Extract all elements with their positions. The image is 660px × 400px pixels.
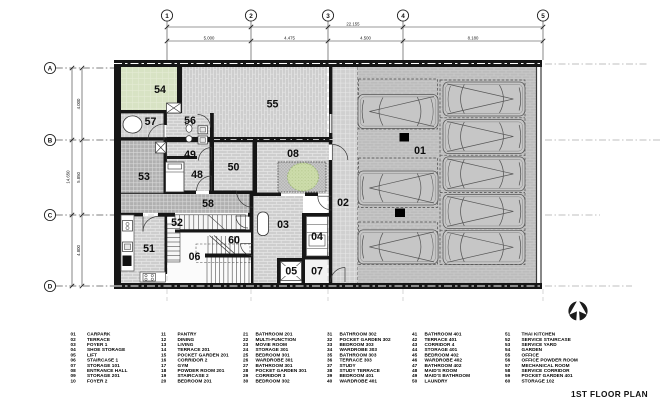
svg-text:BEDROOM 201: BEDROOM 201 <box>178 378 212 383</box>
svg-text:40: 40 <box>327 378 333 383</box>
svg-text:56: 56 <box>184 115 196 127</box>
svg-text:03: 03 <box>277 219 289 231</box>
svg-text:57: 57 <box>145 116 157 128</box>
svg-text:55: 55 <box>267 99 279 111</box>
svg-text:05: 05 <box>285 266 297 278</box>
svg-text:1ST FLOOR PLAN: 1ST FLOOR PLAN <box>571 389 648 399</box>
svg-text:5.850: 5.850 <box>76 172 81 183</box>
svg-text:3: 3 <box>326 13 330 20</box>
svg-text:4.475: 4.475 <box>284 35 295 40</box>
svg-text:4: 4 <box>401 13 405 20</box>
svg-text:02: 02 <box>337 197 349 209</box>
svg-text:49: 49 <box>184 149 196 161</box>
svg-text:58: 58 <box>202 198 214 210</box>
svg-text:30: 30 <box>243 378 249 383</box>
svg-text:04: 04 <box>311 231 323 243</box>
svg-text:53: 53 <box>138 171 150 183</box>
svg-text:50: 50 <box>412 378 418 383</box>
svg-text:5.000: 5.000 <box>204 35 215 40</box>
svg-text:52: 52 <box>171 217 183 229</box>
svg-text:60: 60 <box>505 378 511 383</box>
svg-text:B: B <box>48 137 53 144</box>
svg-text:C: C <box>48 212 53 219</box>
svg-text:8.180: 8.180 <box>468 35 479 40</box>
svg-text:STORAGE 102: STORAGE 102 <box>522 378 555 383</box>
svg-text:54: 54 <box>154 84 166 96</box>
svg-text:06: 06 <box>189 251 201 263</box>
svg-text:51: 51 <box>143 243 155 255</box>
svg-text:07: 07 <box>311 266 323 278</box>
svg-text:A: A <box>48 65 53 72</box>
svg-text:01: 01 <box>414 145 426 157</box>
svg-text:4.000: 4.000 <box>76 98 81 109</box>
svg-text:20: 20 <box>161 378 167 383</box>
svg-text:D: D <box>48 283 53 290</box>
svg-text:08: 08 <box>287 148 299 160</box>
svg-text:FOYER 2: FOYER 2 <box>87 378 108 383</box>
svg-text:50: 50 <box>228 162 240 174</box>
svg-text:2: 2 <box>249 13 253 20</box>
svg-text:14.650: 14.650 <box>66 170 71 184</box>
svg-text:1: 1 <box>165 13 169 20</box>
svg-text:48: 48 <box>191 169 203 181</box>
svg-text:4.500: 4.500 <box>360 35 371 40</box>
svg-text:BEDROOM 302: BEDROOM 302 <box>256 378 290 383</box>
svg-text:60: 60 <box>228 235 240 247</box>
svg-text:4.800: 4.800 <box>76 245 81 256</box>
svg-text:LAUNDRY: LAUNDRY <box>425 378 449 383</box>
svg-text:10: 10 <box>71 378 77 383</box>
svg-text:WARDROBE 401: WARDROBE 401 <box>340 378 378 383</box>
svg-text:22.155: 22.155 <box>346 21 360 26</box>
svg-text:5: 5 <box>541 13 545 20</box>
